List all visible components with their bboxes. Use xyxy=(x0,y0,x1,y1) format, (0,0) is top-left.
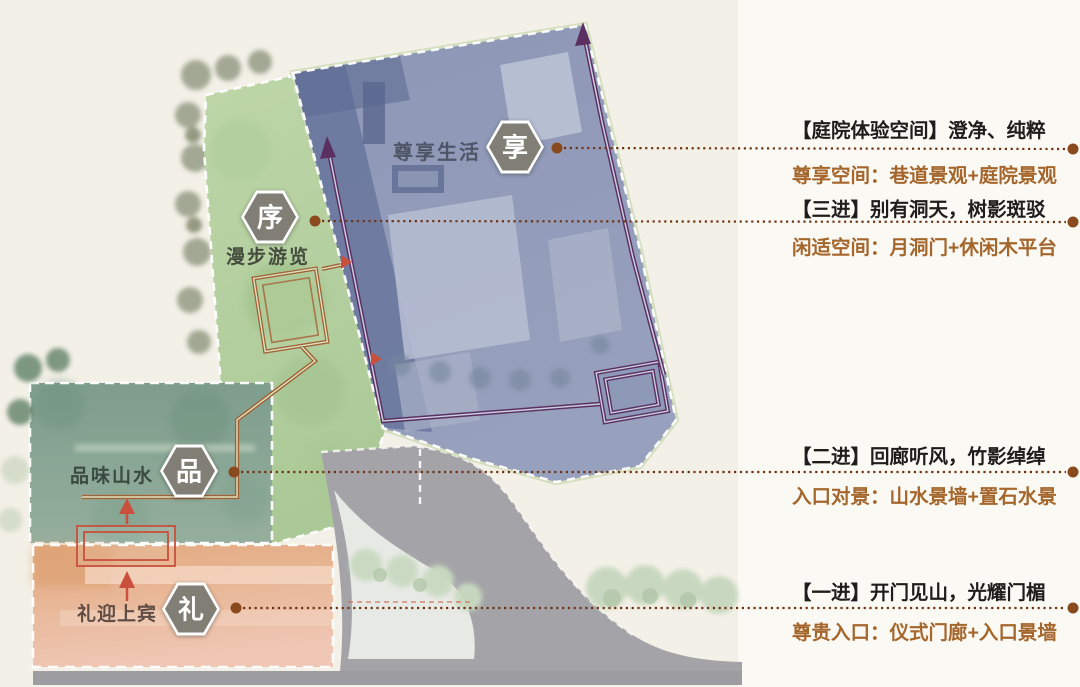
annotation-first-entry-title: 【一进】开门见山，光耀门楣 xyxy=(792,576,1046,605)
annotation-second-entry-title: 【二进】回廊听风，竹影绰绰 xyxy=(792,440,1046,469)
zone-badge-enjoy: 享 xyxy=(486,121,544,174)
zone-label-enjoy-life: 尊享生活 xyxy=(393,136,481,165)
courtyard-purple-rect xyxy=(596,362,668,422)
annotation-first-entry-subtitle: 尊贵入口：仪式门廊+入口景墙 xyxy=(792,616,1057,645)
annotation-second-entry-subtitle: 入口对景：山水景墙+置石水景 xyxy=(792,480,1057,509)
site-plan-infographic: 享 序 品 礼 尊享生活 漫步游览 品味山水 礼迎上宾 【庭院体验空间】澄净、纯… xyxy=(0,0,1080,687)
zone-badge-ritual: 礼 xyxy=(162,583,220,636)
annotation-courtyard-subtitle: 尊享空间：巷道景观+庭院景观 xyxy=(792,159,1057,188)
zone-badge-taste: 品 xyxy=(160,445,218,498)
annotation-courtyard-title: 【庭院体验空间】澄净、纯粹 xyxy=(792,114,1046,143)
annotation-third-entry-title: 【三进】别有洞天，树影斑驳 xyxy=(792,193,1046,222)
zone-label-taste-landscape: 品味山水 xyxy=(70,461,154,488)
zone-badge-sequence: 序 xyxy=(241,191,299,244)
annotation-third-entry-subtitle: 闲适空间：月洞门+休闲木平台 xyxy=(792,231,1057,260)
stroll-courtyard-rect xyxy=(254,269,328,352)
zone-label-stroll-tour: 漫步游览 xyxy=(226,242,310,269)
zone-label-welcome-guests: 礼迎上宾 xyxy=(77,599,157,626)
